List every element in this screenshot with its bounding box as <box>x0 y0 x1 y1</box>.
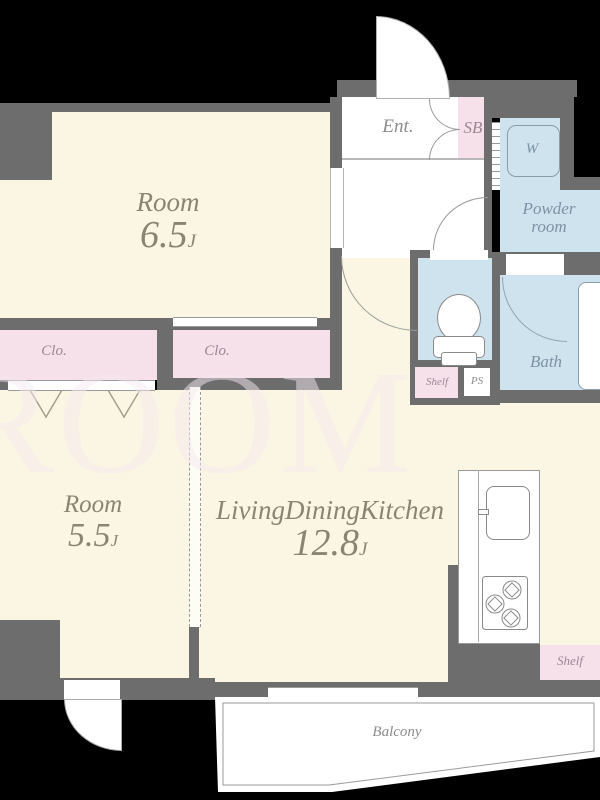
floor-plan: ROOM CORE Room 6.5J Room 5.5J LivingDini… <box>0 0 600 800</box>
toilet-bowl <box>437 294 481 342</box>
ldk-size: 12.8J <box>216 524 444 564</box>
wall-pillar-top-left <box>0 103 52 180</box>
powder-line2: room <box>523 218 576 236</box>
partition-sliding-door <box>189 387 201 627</box>
room-6-5-name: Room <box>137 188 200 216</box>
shelf-kitchen-label: Shelf <box>557 654 583 668</box>
washer-label: W <box>526 142 539 158</box>
wall-closet1-left-stub <box>0 380 8 390</box>
ldk-label: LivingDiningKitchen 12.8J <box>216 496 444 564</box>
shelf-hall-label: Shelf <box>426 377 448 389</box>
closet2-sliding-track <box>173 317 317 327</box>
hall-shelf-hatch <box>492 122 500 190</box>
toilet-base <box>441 352 477 366</box>
pipe-space-label: PS <box>471 376 483 388</box>
kitchen-stove <box>482 576 528 630</box>
kitchen-counter-line <box>478 470 479 642</box>
room-6-5-size: 6.5J <box>137 216 200 256</box>
kitchen-sink <box>486 486 530 540</box>
toilet-door-gap <box>430 250 488 260</box>
folding-door-icon <box>106 389 142 419</box>
bath-door-gap <box>506 254 564 275</box>
balcony-shape <box>0 690 600 800</box>
folding-door-icon <box>28 389 64 419</box>
room-5-5-size: 5.5J <box>64 518 122 554</box>
wall-top-right <box>337 80 577 97</box>
entrance-step-line <box>342 158 484 160</box>
closet-1-floor <box>0 330 157 380</box>
closet-2-label: Clo. <box>204 344 229 360</box>
powder-room-label: Powder room <box>523 200 576 236</box>
entrance-door-arc <box>376 16 450 99</box>
ldk-name: LivingDiningKitchen <box>216 496 444 524</box>
wall-bath-bottom <box>492 390 600 403</box>
wall-right-step <box>560 177 600 190</box>
kitchen-faucet <box>478 509 489 515</box>
shoe-box-label: SB <box>464 119 483 137</box>
wall-kitchen-stub <box>448 565 458 642</box>
closet-1-label: Clo. <box>41 344 66 360</box>
bathtub <box>578 282 600 390</box>
closet-2-floor <box>173 330 330 378</box>
bath-label: Bath <box>530 353 562 371</box>
balcony-label: Balcony <box>372 725 421 741</box>
room-6-5-label: Room 6.5J <box>137 188 200 256</box>
powder-line1: Powder <box>523 200 576 218</box>
room-5-5-label: Room 5.5J <box>64 492 122 554</box>
entrance-label: Ent. <box>382 117 413 137</box>
room-5-5-name: Room <box>64 492 122 518</box>
room65-door <box>330 168 344 248</box>
